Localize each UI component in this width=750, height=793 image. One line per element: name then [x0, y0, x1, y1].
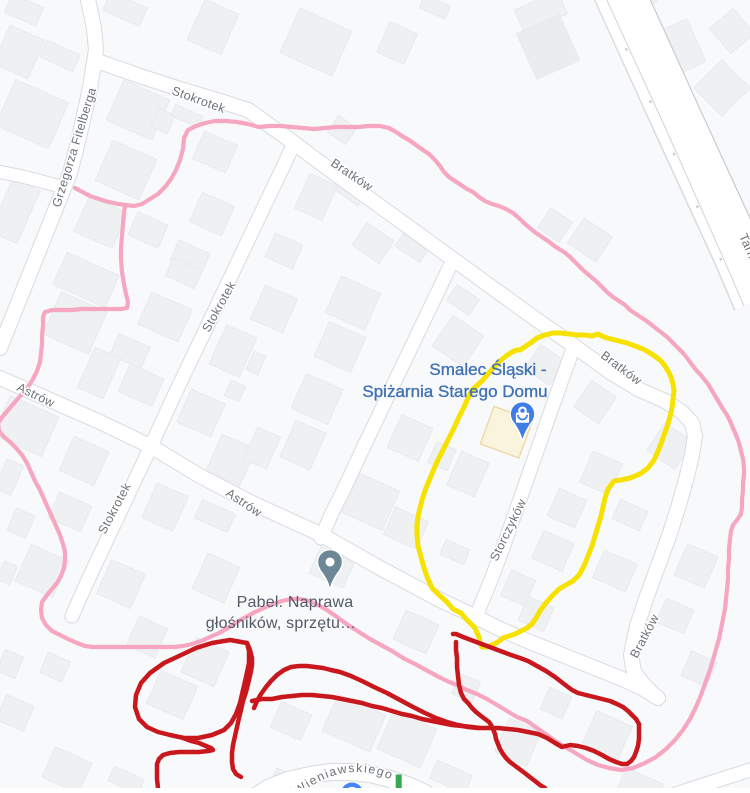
svg-text:Pabel. Naprawa: Pabel. Naprawa — [237, 594, 354, 611]
svg-text:Smalec Śląski -: Smalec Śląski - — [429, 360, 546, 379]
svg-text:Spiżarnia Starego Domu: Spiżarnia Starego Domu — [362, 382, 547, 401]
svg-text:głośników, sprzętu…: głośników, sprzętu… — [206, 615, 357, 632]
